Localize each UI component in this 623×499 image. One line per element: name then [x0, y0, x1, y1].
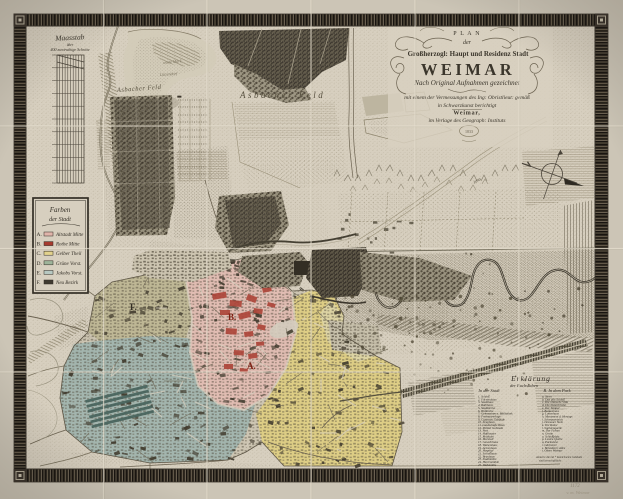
svg-text:1172: 1172: [570, 484, 580, 489]
svg-text:v. m. Weimar: v. m. Weimar: [566, 490, 589, 495]
